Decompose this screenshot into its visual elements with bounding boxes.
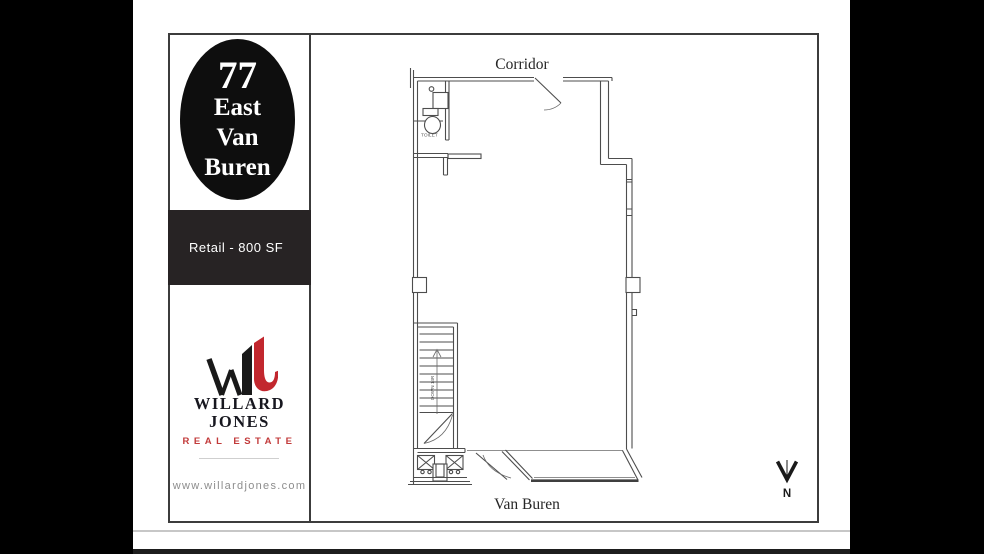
address-word-east: East: [214, 93, 261, 123]
logo-name-line2: JONES: [170, 413, 309, 431]
logo-name-line1: WILLARD: [170, 395, 309, 413]
logo-company-name: WILLARD JONES: [170, 395, 309, 432]
website-url: www.willardjones.com: [170, 480, 309, 492]
bottom-divider-line: [133, 530, 850, 532]
flyer-frame: 77 East Van Buren Retail - 800 SF WILLAR…: [168, 33, 819, 523]
sidebar-divider-line: [199, 458, 279, 459]
address-oval-badge: 77 East Van Buren: [180, 39, 295, 200]
address-number: 77: [218, 58, 257, 93]
brand-sidebar: 77 East Van Buren Retail - 800 SF WILLAR…: [170, 35, 311, 521]
right-black-bar: [850, 0, 984, 554]
address-word-van: Van: [216, 123, 258, 153]
address-word-buren: Buren: [204, 153, 270, 183]
bottom-black-bar: [133, 549, 850, 554]
logo-subtitle: REAL ESTATE: [170, 436, 309, 447]
unit-info-label: Retail - 800 SF: [168, 240, 283, 255]
willard-jones-logo-icon: [204, 332, 278, 398]
unit-info-band: Retail - 800 SF: [168, 210, 311, 285]
flyer-page: 77 East Van Buren Retail - 800 SF WILLAR…: [0, 0, 984, 554]
left-black-bar: [0, 0, 133, 554]
